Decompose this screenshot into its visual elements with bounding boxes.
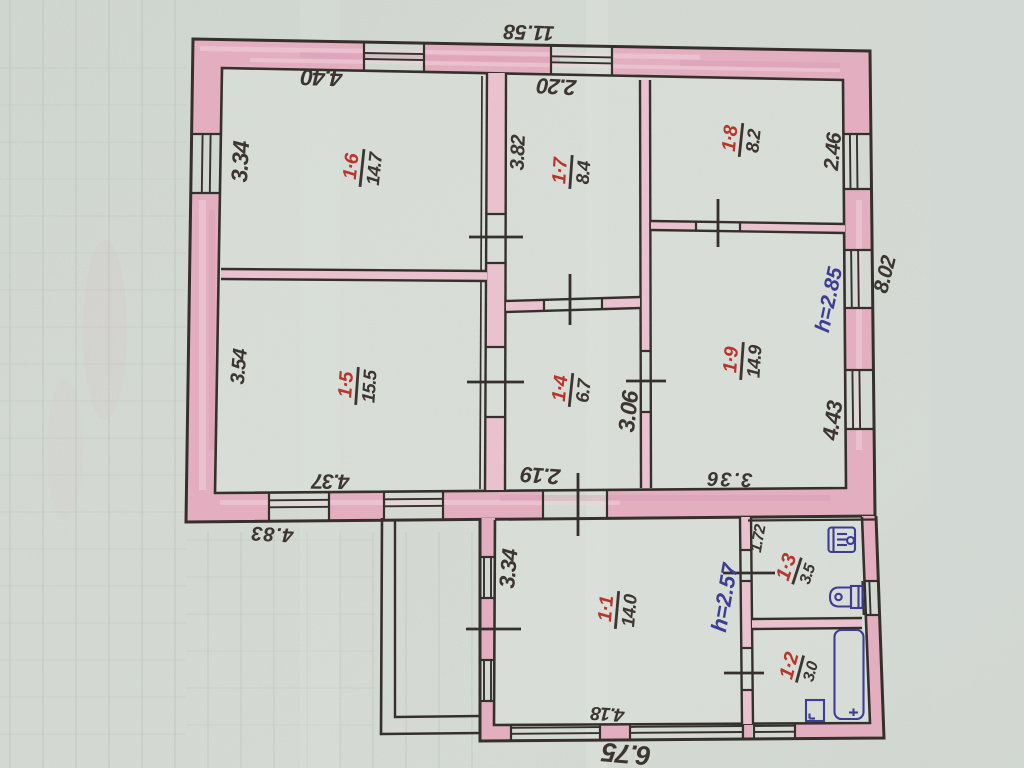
svg-text:2.46: 2.46 [820,131,846,172]
svg-text:1·7: 1·7 [548,156,572,185]
svg-text:4.37: 4.37 [310,469,351,493]
svg-text:14.9: 14.9 [742,343,765,378]
svg-text:4.83: 4.83 [250,522,295,546]
svg-text:8.2: 8.2 [741,127,764,153]
svg-text:3.36: 3.36 [705,467,753,491]
svg-text:3.82: 3.82 [507,134,530,171]
svg-text:2.20: 2.20 [535,73,578,100]
svg-text:15.5: 15.5 [357,368,380,403]
svg-text:3.34: 3.34 [226,140,254,183]
svg-text:1·9: 1·9 [719,346,743,374]
svg-text:1·1: 1·1 [594,595,618,622]
svg-text:8.4: 8.4 [572,160,595,185]
svg-text:14.7: 14.7 [362,150,387,187]
svg-text:4.40: 4.40 [300,64,344,91]
svg-text:3.06: 3.06 [613,389,643,433]
svg-text:14.0: 14.0 [617,592,641,627]
svg-text:11.58: 11.58 [503,20,555,45]
svg-text:3.54: 3.54 [227,348,252,386]
svg-text:2.19: 2.19 [519,462,562,490]
svg-text:4.18: 4.18 [589,702,626,725]
svg-text:1·5: 1·5 [334,370,358,399]
svg-text:6.75: 6.75 [599,737,652,768]
svg-text:3.34: 3.34 [494,548,522,590]
